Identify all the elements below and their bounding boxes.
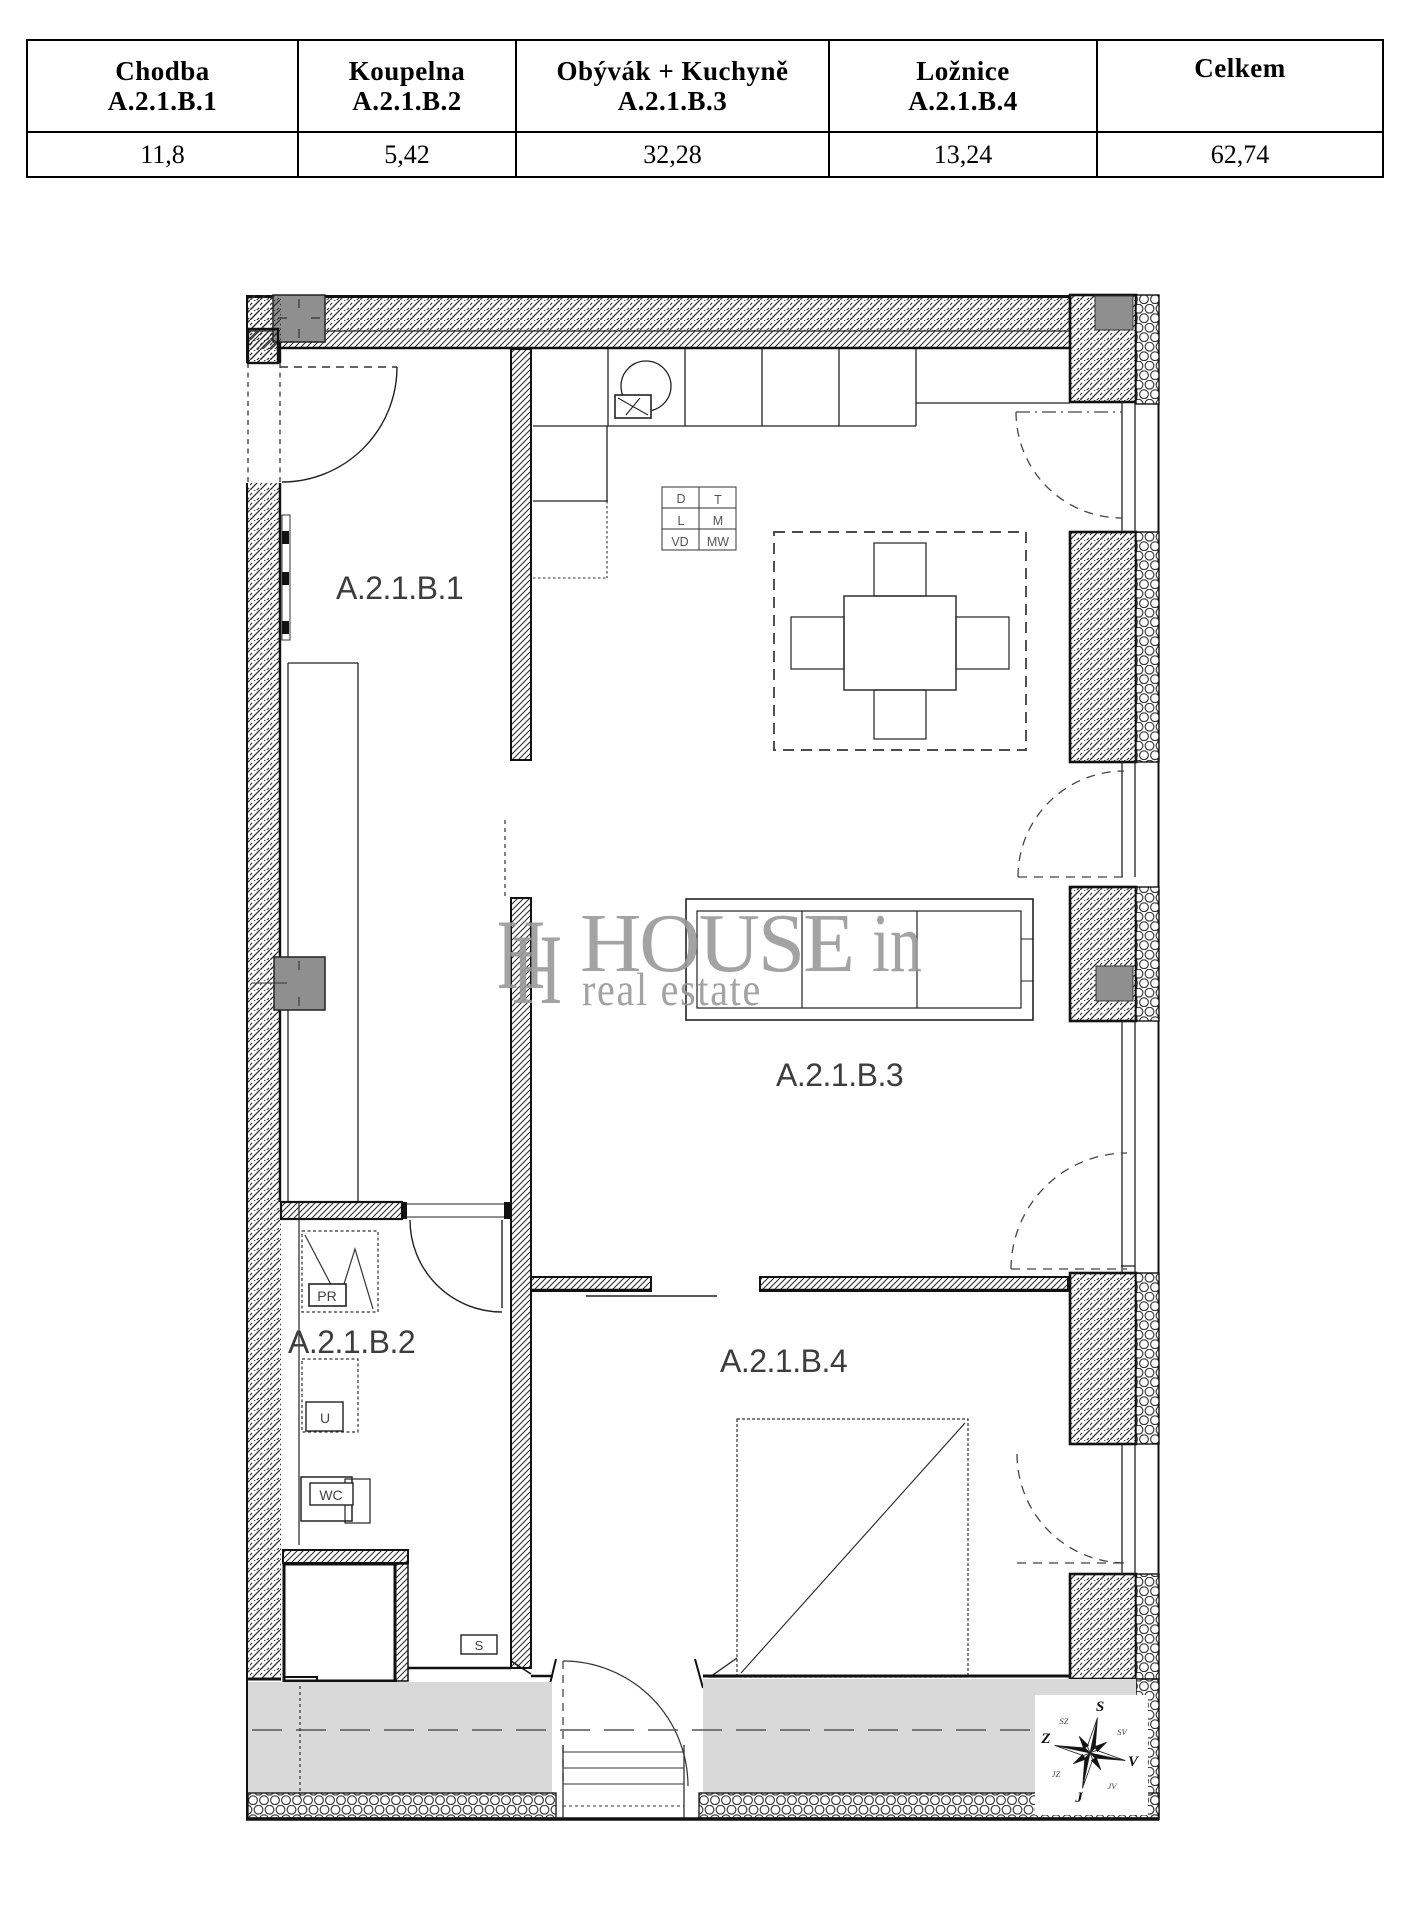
svg-text:A.2.1.B.3: A.2.1.B.3 (776, 1057, 903, 1093)
svg-text:in: in (872, 897, 922, 990)
svg-text:M: M (713, 514, 723, 528)
svg-text:L: L (678, 514, 685, 528)
svg-text:PR: PR (317, 1288, 336, 1304)
svg-text:D: D (676, 492, 685, 506)
svg-text:real estate: real estate (582, 964, 762, 1016)
svg-text:MW: MW (707, 535, 729, 549)
svg-text:Z: Z (1040, 1731, 1050, 1747)
svg-text:T: T (714, 493, 722, 507)
svg-text:VD: VD (671, 535, 688, 549)
svg-text:SZ: SZ (1060, 1716, 1069, 1726)
svg-text:A.2.1.B.4: A.2.1.B.4 (720, 1343, 847, 1379)
svg-text:U: U (320, 1410, 330, 1426)
svg-text:S: S (475, 1638, 484, 1653)
svg-text:A.2.1.B.2: A.2.1.B.2 (288, 1324, 415, 1360)
svg-text:JZ: JZ (1052, 1769, 1061, 1779)
svg-text:H: H (512, 914, 562, 1025)
svg-text:WC: WC (319, 1487, 342, 1503)
svg-text:J: J (1074, 1790, 1083, 1806)
svg-text:A.2.1.B.1: A.2.1.B.1 (336, 570, 463, 606)
svg-text:S: S (1096, 1699, 1104, 1715)
